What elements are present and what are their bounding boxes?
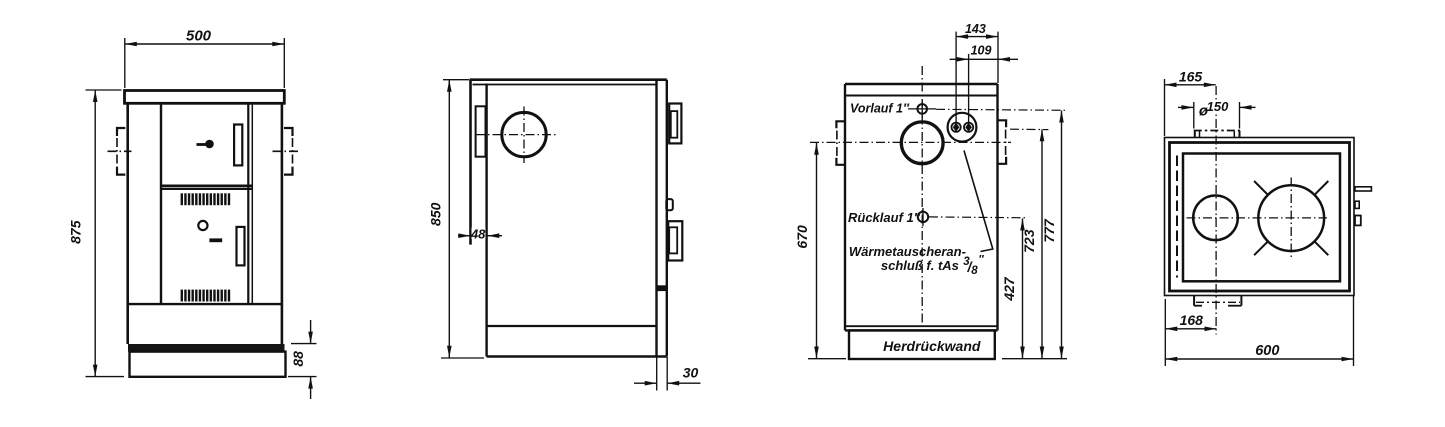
svg-text:670: 670 [794,225,810,249]
svg-text:48: 48 [470,227,486,242]
svg-text:88: 88 [290,351,306,367]
svg-text:schluß f. tAs: schluß f. tAs [881,258,959,273]
svg-text:850: 850 [427,202,443,226]
svg-text:600: 600 [1255,343,1279,359]
svg-text:150: 150 [1207,99,1229,114]
svg-text:30: 30 [683,364,699,380]
svg-text:165: 165 [1179,68,1203,84]
svg-text:500: 500 [186,28,212,45]
svg-text:Rücklauf 1″: Rücklauf 1″ [848,210,921,225]
svg-text:109: 109 [971,44,992,58]
svg-text:143: 143 [965,22,986,36]
svg-text:Vorlauf 1″: Vorlauf 1″ [850,102,910,116]
svg-text:Herdrückwand: Herdrückwand [883,338,981,354]
svg-text:168: 168 [1180,312,1204,328]
svg-text:427: 427 [1001,276,1017,302]
svg-text:8: 8 [971,265,978,277]
svg-text:″: ″ [978,254,984,266]
svg-text:723: 723 [1021,229,1037,253]
svg-text:875: 875 [68,220,84,244]
svg-text:777: 777 [1041,218,1057,243]
